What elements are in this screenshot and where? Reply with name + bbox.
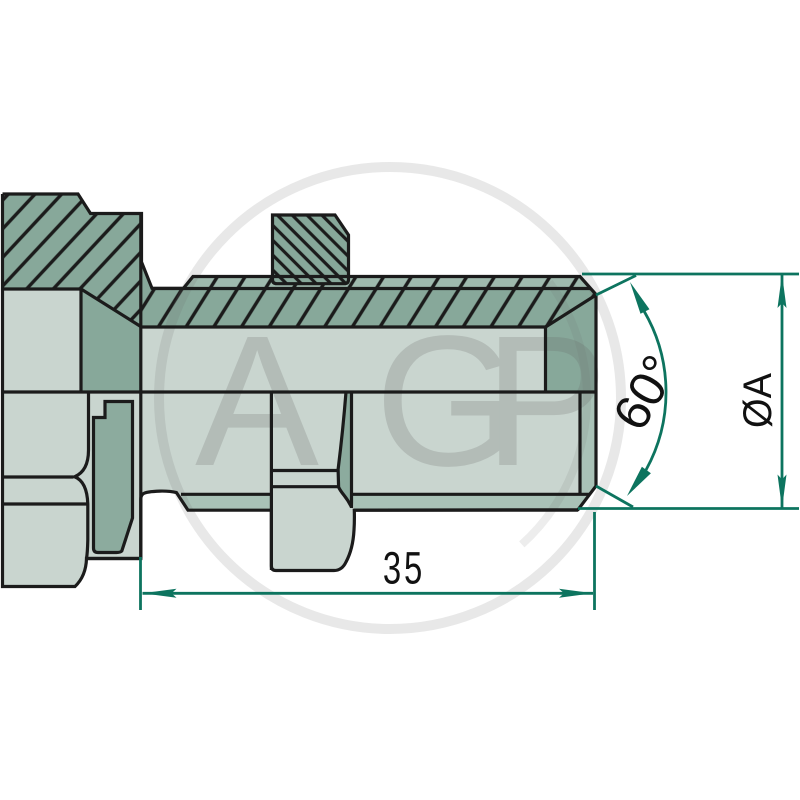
- svg-text:35: 35: [383, 544, 425, 594]
- svg-text:ØA: ØA: [736, 373, 780, 428]
